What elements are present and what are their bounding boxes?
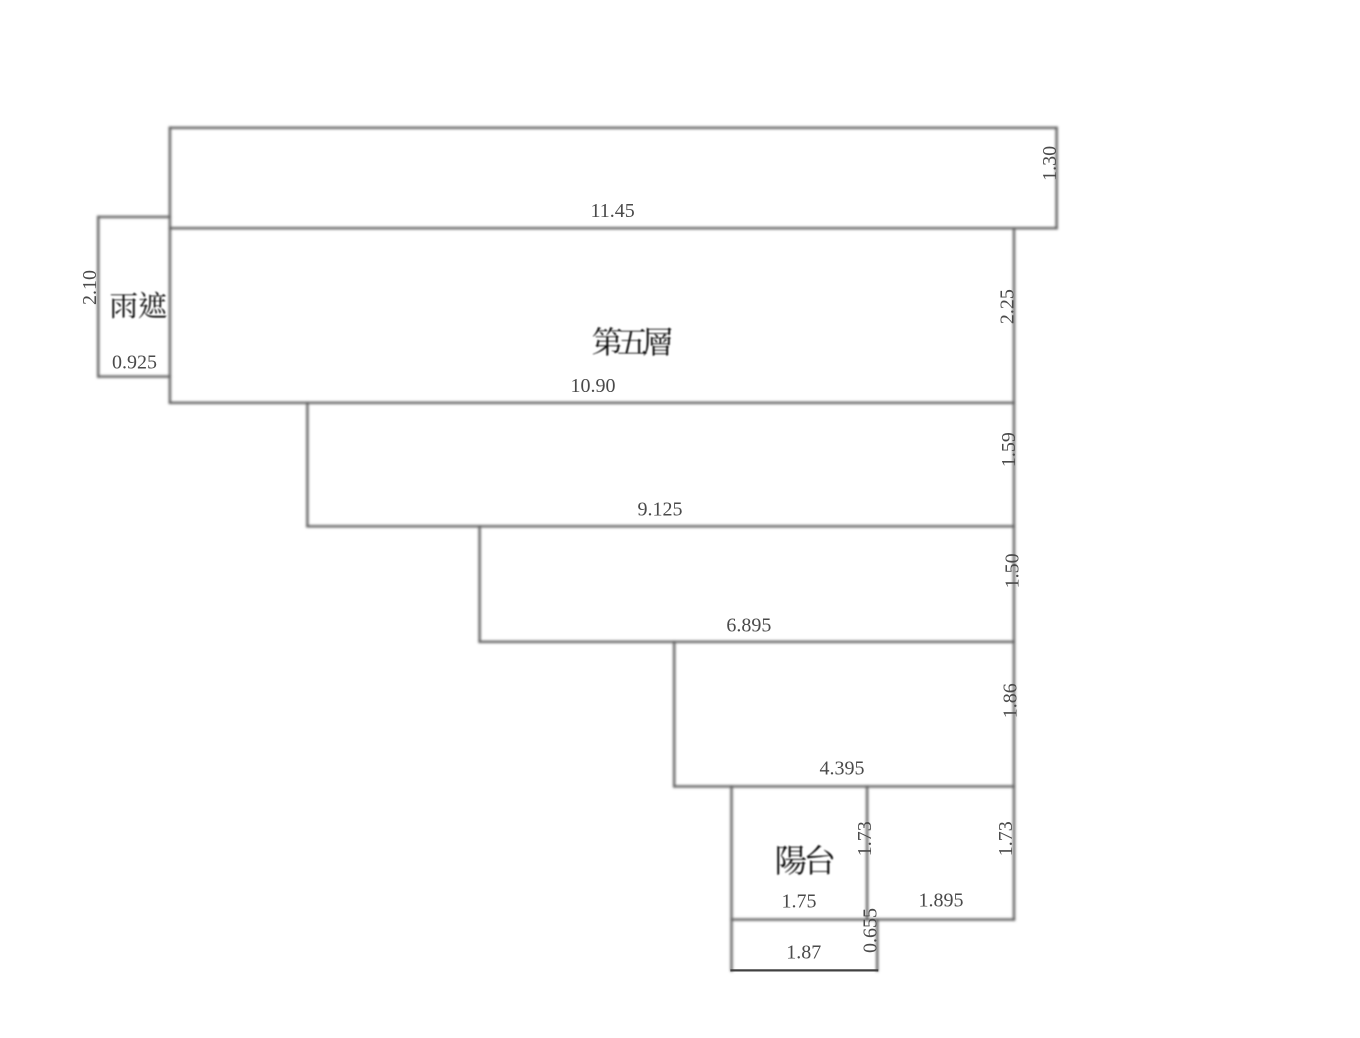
- svg-text:11.45: 11.45: [590, 200, 634, 222]
- svg-text:1.75: 1.75: [782, 891, 817, 913]
- svg-text:0.655: 0.655: [860, 908, 882, 953]
- svg-text:1.50: 1.50: [1001, 553, 1023, 588]
- svg-text:9.125: 9.125: [638, 499, 683, 521]
- svg-text:1.73: 1.73: [854, 821, 876, 856]
- svg-text:1.30: 1.30: [1039, 146, 1061, 181]
- svg-text:2.25: 2.25: [997, 289, 1019, 324]
- svg-text:1.86: 1.86: [999, 683, 1021, 718]
- svg-text:6.895: 6.895: [726, 615, 771, 637]
- svg-text:0.925: 0.925: [112, 352, 157, 374]
- svg-text:10.90: 10.90: [571, 375, 616, 397]
- svg-text:4.395: 4.395: [820, 758, 865, 780]
- svg-text:2.10: 2.10: [79, 270, 101, 305]
- svg-text:1.59: 1.59: [998, 432, 1020, 467]
- svg-text:1.895: 1.895: [919, 890, 964, 912]
- svg-text:1.87: 1.87: [786, 942, 821, 964]
- svg-text:1.73: 1.73: [995, 821, 1017, 856]
